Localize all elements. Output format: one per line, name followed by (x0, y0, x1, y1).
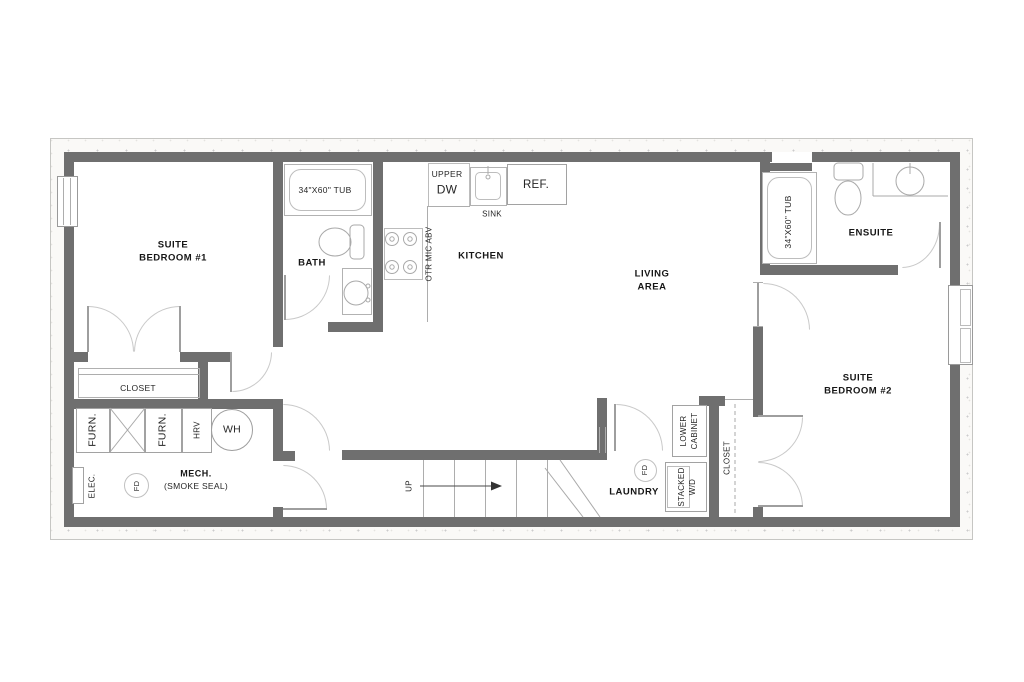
label-stairs-up: UP (403, 480, 414, 492)
label-refrigerator: REF. (523, 177, 549, 193)
laundry-jamb1 (599, 427, 600, 453)
closet2-door-leaf-top (758, 415, 803, 417)
closet1-door-leaf-right (179, 306, 181, 352)
laundry-jamb2 (605, 427, 606, 453)
wall-ensuite-bottom (760, 265, 898, 275)
wall-bedroom1-bottom-a (64, 352, 88, 362)
room-label-ensuite: ENSUITE (849, 226, 894, 239)
x-box (110, 408, 145, 453)
wall-top-left (64, 152, 772, 162)
label-smoke-seal: (SMOKE SEAL) (164, 481, 228, 493)
hall-door-leaf-lower (283, 508, 327, 510)
label-lower-cabinet: LOWER CABINET (678, 413, 700, 450)
wall-ensuite-window-sill (765, 163, 812, 171)
wall-mech-right-low (273, 507, 283, 517)
room-label-kitchen: KITCHEN (458, 249, 504, 262)
label-ensuite-tub: 34"X60" TUB (783, 195, 795, 248)
label-hrv: HRV (191, 421, 202, 439)
wall-bedroom2-closet (753, 327, 763, 417)
window-bedroom1 (57, 176, 78, 227)
wall-mech-right (273, 409, 283, 451)
stair-tread (547, 460, 548, 517)
label-elec-panel: ELEC. (86, 474, 97, 499)
label-water-heater: WH (223, 423, 241, 438)
wall-bath-bottom (328, 322, 383, 332)
label-fd-laundry: FD (640, 465, 651, 476)
label-fd-mech: FD (132, 481, 143, 492)
wall-laundry-closet2 (709, 398, 719, 517)
bedroom2-door-leaf (757, 283, 759, 327)
room-label-bedroom1: SUITE BEDROOM #1 (139, 239, 207, 266)
wall-bottom (64, 517, 960, 527)
wall-bedroom2-closet-low (753, 507, 763, 527)
label-furnace2: FURN. (156, 413, 171, 447)
ensuite-door-leaf (939, 222, 941, 268)
label-otr-microwave: OTR MIC ABV (423, 227, 434, 282)
closet1-door-leaf-left (87, 306, 89, 352)
window-bedroom1-mullion2 (70, 178, 71, 225)
window-bedroom1-mullion (63, 178, 64, 225)
floor-plan: SUITE BEDROOM #1 BATH 34"X60" TUB UPPER … (0, 0, 1024, 682)
window-bedroom2-sash-top (960, 289, 971, 326)
bath-door-leaf (284, 275, 286, 320)
bedroom1-door-leaf (230, 352, 232, 392)
kitchen-sink-basin (475, 172, 501, 200)
elec-panel-box (72, 467, 84, 504)
closet1-shelf-line (78, 374, 200, 375)
room-label-bedroom2: SUITE BEDROOM #2 (824, 372, 892, 399)
room-label-mech: MECH. (180, 468, 212, 481)
label-sink: SINK (482, 208, 502, 219)
stair-tread (454, 460, 455, 517)
closet2-top-line (725, 399, 753, 400)
room-label-bath: BATH (298, 256, 326, 269)
laundry-door-leaf (614, 404, 616, 451)
label-closet1: CLOSET (120, 383, 156, 395)
label-dishwasher: DW (437, 182, 458, 199)
stair-tread (516, 460, 517, 517)
wall-right-lower (950, 365, 960, 527)
room-label-living: LIVING AREA (635, 268, 670, 295)
stove-box (384, 228, 423, 280)
label-upper-cabinet: UPPER (432, 169, 463, 181)
wall-bedroom1-bath (273, 162, 283, 347)
stair-tread (423, 460, 424, 517)
label-stacked-wd: STACKED W/D (676, 467, 698, 506)
bath-sink-counter (342, 268, 372, 315)
wall-hall-stub (273, 451, 295, 461)
wall-bath-kitchen (373, 162, 383, 322)
window-bedroom2-sash-bottom (960, 328, 971, 363)
label-closet2: CLOSET (721, 441, 732, 475)
wall-living-stairs (342, 450, 597, 460)
wall-bedroom1-bottom-b (180, 352, 230, 362)
label-bath-tub: 34"X60" TUB (298, 185, 351, 197)
wall-right-upper (950, 152, 960, 285)
stair-tread (485, 460, 486, 517)
room-label-laundry: LAUNDRY (609, 485, 659, 498)
bedroom2-door-jamb1 (753, 282, 763, 283)
closet2-door-leaf-bottom (758, 505, 803, 507)
counter-front-edge (427, 206, 470, 207)
bedroom2-door-jamb2 (753, 326, 763, 327)
wall-left-upper (64, 152, 74, 177)
label-furnace1: FURN. (86, 413, 101, 447)
wall-top-right (812, 152, 960, 162)
